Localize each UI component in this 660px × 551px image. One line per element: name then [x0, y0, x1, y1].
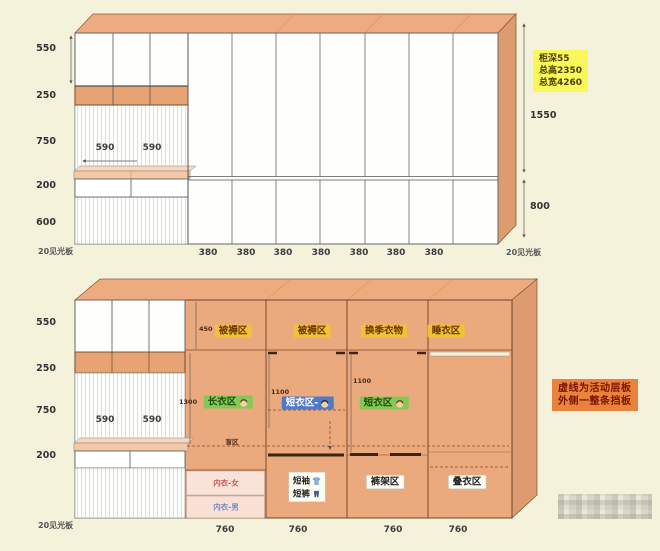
top-dim-600: 600 [30, 217, 56, 228]
zone-short-clothes-blue-label: 短衣区- [286, 398, 318, 409]
dim-450: 450 [199, 325, 213, 333]
top-door-width-2: 380 [237, 248, 256, 258]
zone-seasonal-clothes: 换季衣物 [361, 325, 407, 338]
zone-blind: 盲区 [226, 436, 239, 446]
dim-1300: 1300 [179, 398, 197, 406]
zone-bedding-1: 被褥区 [215, 325, 252, 338]
shorts-row: 短裤 [293, 488, 321, 500]
bottom-col-width-1: 760 [216, 525, 235, 535]
top-desk-width-1: 590 [96, 143, 115, 153]
boy-face-icon [238, 397, 248, 407]
bottom-col-width-2: 760 [289, 525, 308, 535]
top-door-width-7: 380 [425, 248, 444, 258]
zone-pajamas: 睡衣区 [428, 325, 465, 338]
top-dim-250: 250 [30, 90, 56, 101]
shelf-note-line1: 虚线为活动层板 [558, 382, 632, 395]
bottom-dim-750: 750 [30, 405, 56, 416]
zone-seasonal-label: 换季衣物 [365, 326, 403, 337]
top-dim-750: 750 [30, 136, 56, 147]
bottom-edge-note-left: 20见光板 [38, 520, 73, 531]
spec-note-depth: 柜深55 [539, 53, 582, 65]
short-sleeve-row: 短袖 [293, 475, 321, 487]
zone-trouser-rack-label: 裤架区 [371, 477, 400, 488]
top-door-width-4: 380 [312, 248, 331, 258]
bottom-dim-200: 200 [30, 450, 56, 461]
wardrobe-design-sheet: 550 250 750 200 600 20见光板 20见光板 590 590 … [0, 0, 660, 551]
spec-note-width: 总宽4260 [539, 77, 582, 89]
bottom-col-width-3: 760 [384, 525, 403, 535]
zone-trouser-rack: 裤架区 [367, 476, 404, 489]
zone-short-clothes-blue: 短衣区- [282, 397, 334, 410]
top-dim-550: 550 [30, 43, 56, 54]
top-desk-width-2: 590 [143, 143, 162, 153]
zone-bedding-1-label: 被褥区 [219, 326, 248, 337]
zone-bedding-2: 被褥区 [294, 325, 331, 338]
zone-folded-clothes-label: 叠衣区 [453, 477, 482, 488]
spec-note-height: 总高2350 [539, 65, 582, 77]
top-wardrobe-drawing [71, 14, 524, 244]
tshirt-icon [312, 476, 321, 485]
zone-pajamas-label: 睡衣区 [432, 326, 461, 337]
short-sleeve-label: 短袖 [293, 475, 310, 487]
spec-note: 柜深55 总高2350 总宽4260 [533, 50, 588, 92]
bottom-col-width-4: 760 [449, 525, 468, 535]
zone-folded-clothes: 叠衣区 [449, 476, 486, 489]
zone-long-clothes-label: 长衣区 [208, 397, 237, 408]
bottom-desk-width-2: 590 [143, 415, 162, 425]
boy-face-icon [320, 398, 330, 408]
top-door-width-3: 380 [274, 248, 293, 258]
zone-short-sleeve-shorts: 短袖 短裤 [289, 473, 325, 502]
boy-face-icon [394, 398, 404, 408]
dim-1100-col3: 1100 [353, 377, 371, 385]
top-door-width-5: 380 [350, 248, 369, 258]
shelf-note-line2: 外侧一整条挡板 [558, 395, 632, 408]
top-door-width-1: 380 [199, 248, 218, 258]
top-edge-note-right: 20见光板 [506, 247, 541, 258]
zone-underwear-male: 内衣-男 [213, 502, 239, 513]
top-dim-800: 800 [530, 201, 550, 212]
bottom-dim-250: 250 [30, 363, 56, 374]
zone-underwear-female: 内衣-女 [213, 478, 239, 489]
zone-bedding-2-label: 被褥区 [298, 326, 327, 337]
top-dim-200: 200 [30, 180, 56, 191]
shorts-icon [312, 489, 321, 498]
top-door-width-6: 380 [387, 248, 406, 258]
zone-long-clothes: 长衣区 [204, 396, 253, 409]
zone-short-clothes-green-label: 短衣区 [364, 398, 393, 409]
bottom-dim-550: 550 [30, 317, 56, 328]
shorts-label: 短裤 [293, 488, 310, 500]
top-dim-1550: 1550 [530, 110, 556, 121]
zone-short-clothes-green: 短衣区 [360, 397, 409, 410]
bottom-desk-width-1: 590 [96, 415, 115, 425]
watermark-blurred [558, 494, 652, 519]
shelf-note: 虚线为活动层板 外侧一整条挡板 [552, 379, 638, 411]
top-edge-note-left: 20见光板 [38, 246, 73, 257]
dim-1100-col2: 1100 [271, 388, 289, 396]
